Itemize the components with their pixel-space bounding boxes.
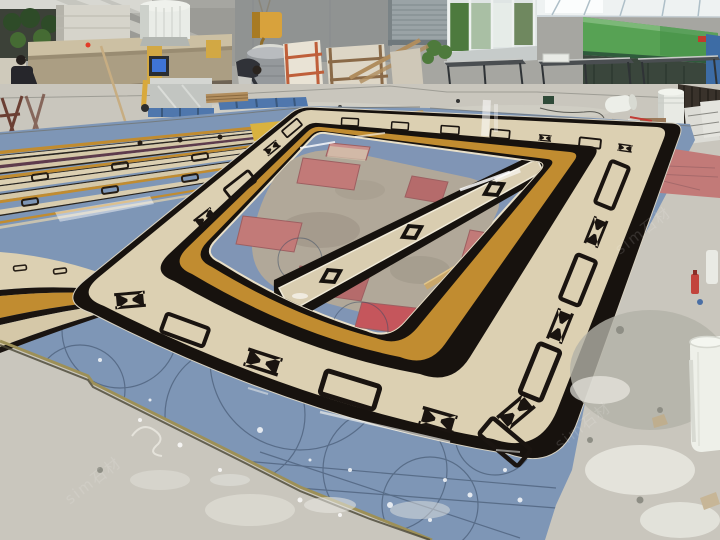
window-pane-foliage-2 bbox=[514, 3, 534, 45]
white-bucket bbox=[690, 336, 720, 452]
plaster-patch bbox=[585, 445, 695, 495]
bucket-lid bbox=[690, 337, 720, 348]
water-tank bbox=[140, 0, 190, 46]
photo-canvas: sim石材 sim石材 sim石材 bbox=[0, 0, 720, 540]
red-sticker bbox=[698, 36, 707, 42]
white-bottle bbox=[706, 250, 718, 284]
yellow-block bbox=[206, 40, 221, 58]
window-pane bbox=[471, 3, 491, 49]
roller-shutter-door bbox=[388, 0, 447, 44]
white-tray bbox=[543, 54, 569, 62]
window-pane-foliage bbox=[450, 3, 469, 51]
window-pane-bright bbox=[493, 3, 512, 47]
red-indicator-light bbox=[86, 43, 91, 48]
monitor-screen bbox=[152, 59, 166, 72]
wrapped-pallet-stack bbox=[148, 78, 214, 117]
dark-green-tool bbox=[543, 96, 554, 104]
workshop-photo: sim石材 sim石材 sim石材 bbox=[0, 0, 720, 540]
red-spray-bottle bbox=[691, 274, 699, 294]
